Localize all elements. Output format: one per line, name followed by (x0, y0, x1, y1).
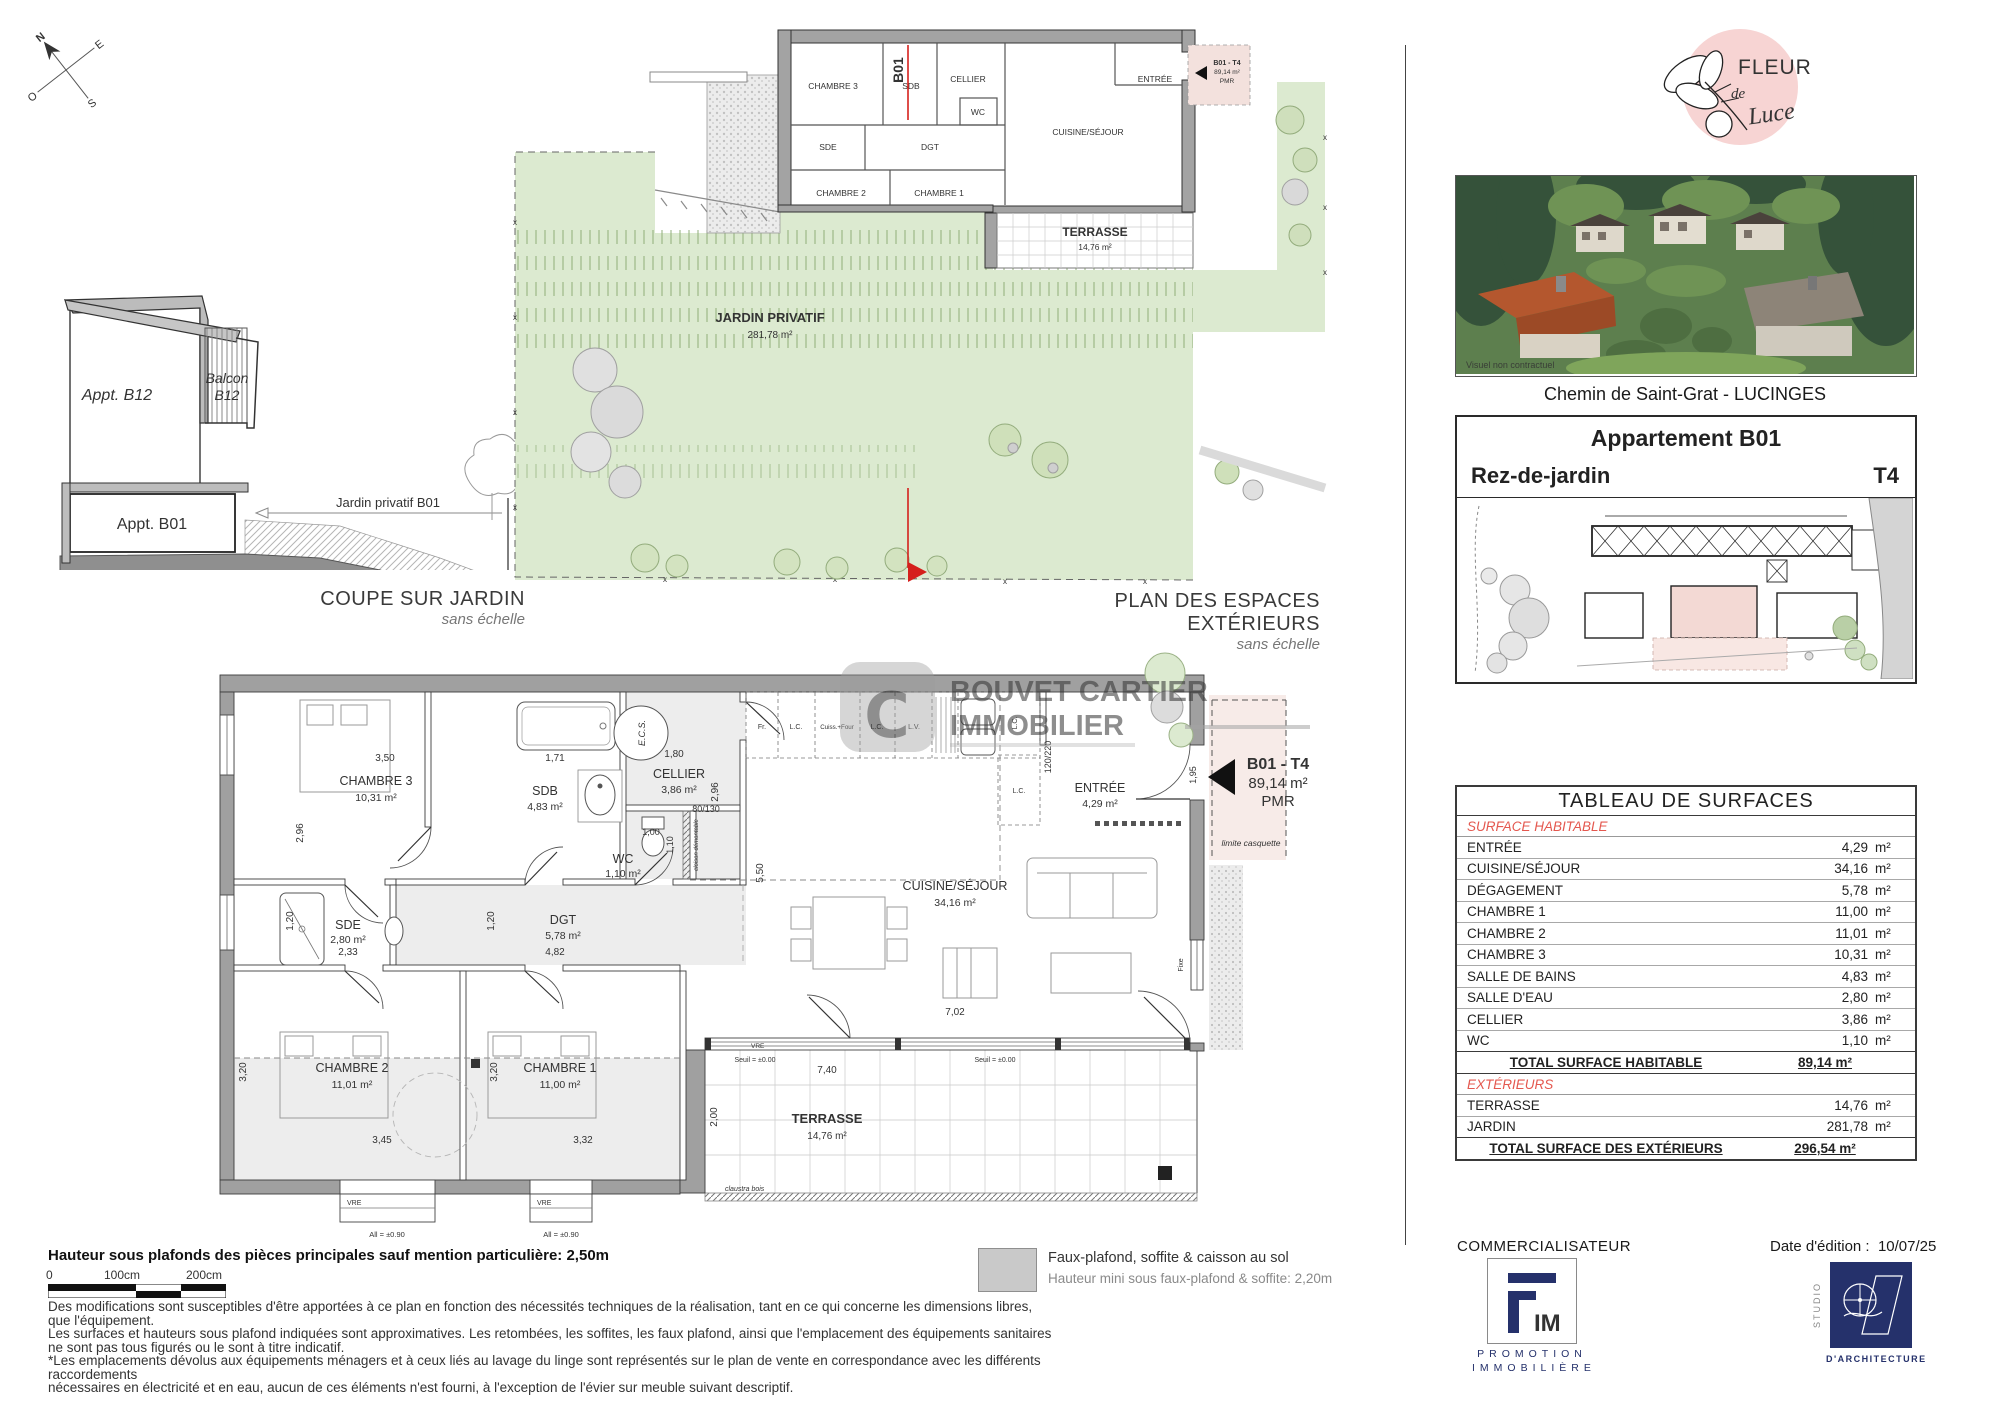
svg-text:B01: B01 (890, 57, 906, 83)
svg-text:Visuel non contractuel: Visuel non contractuel (1466, 360, 1554, 370)
svg-text:CUISINE/SÉJOUR: CUISINE/SÉJOUR (903, 878, 1008, 893)
table-row: CELLIER3,86m² (1457, 1009, 1915, 1031)
svg-text:VRE: VRE (537, 1200, 552, 1207)
svg-text:4,82: 4,82 (545, 947, 565, 958)
table-section-exterieurs: EXTÉRIEURS (1457, 1074, 1915, 1095)
svg-text:ENTRÉE: ENTRÉE (1138, 74, 1173, 84)
svg-text:L.C.: L.C. (790, 724, 803, 731)
table-row: CHAMBRE 310,31m² (1457, 945, 1915, 967)
svg-text:3,45: 3,45 (372, 1135, 392, 1146)
svg-text:34,16 m²: 34,16 m² (934, 897, 976, 909)
table-row: CUISINE/SÉJOUR34,16m² (1457, 859, 1915, 881)
svg-text:All = ±0.90: All = ±0.90 (369, 1230, 405, 1239)
table-row: CHAMBRE 211,01m² (1457, 923, 1915, 945)
svg-text:1,00: 1,00 (642, 827, 660, 837)
svg-text:3,86 m²: 3,86 m² (661, 784, 697, 796)
floor-plan-sheet: N E S O Appt. B12 Ba (0, 0, 2000, 1413)
svg-text:Balcon: Balcon (206, 370, 249, 386)
svg-text:CHAMBRE 2: CHAMBRE 2 (816, 188, 866, 198)
photo-caption: Chemin de Saint-Grat - LUCINGES (1455, 384, 1915, 405)
scale-bar (48, 1284, 226, 1298)
svg-text:VRE: VRE (751, 1043, 765, 1050)
svg-text:DGT: DGT (550, 913, 577, 927)
svg-text:PMR: PMR (1220, 78, 1235, 85)
exterior-plan-title: PLAN DES ESPACES EXTÉRIEURS (1080, 590, 1320, 636)
svg-text:3,50: 3,50 (375, 753, 395, 764)
svg-text:2,00: 2,00 (709, 1107, 720, 1127)
svg-text:Fr.: Fr. (758, 724, 766, 731)
svg-text:x: x (663, 575, 667, 584)
surface-table: TABLEAU DE SURFACES SURFACE HABITABLE EN… (1455, 785, 1917, 1161)
scale-100: 100cm (104, 1268, 140, 1282)
table-row: DÉGAGEMENT5,78m² (1457, 880, 1915, 902)
svg-text:7,40: 7,40 (817, 1065, 837, 1076)
studio-caption-label: D'ARCHITECTURE (1826, 1354, 1926, 1364)
unit-box: Appartement B01 Rez-de-jardin T4 (1455, 415, 1917, 684)
svg-text:SDE: SDE (335, 918, 361, 932)
unit-title: Appartement B01 (1457, 417, 1915, 452)
svg-text:Seuil = ±0.00: Seuil = ±0.00 (974, 1057, 1015, 1064)
table-total-habitable: TOTAL SURFACE HABITABLE89,14 m² (1457, 1051, 1915, 1074)
svg-text:CUISINE/SÉJOUR: CUISINE/SÉJOUR (1052, 127, 1123, 137)
svg-text:PMR: PMR (1261, 793, 1295, 810)
surface-table-title: TABLEAU DE SURFACES (1457, 787, 1915, 816)
coupe-title: COUPE SUR JARDIN (285, 588, 525, 611)
scale-200: 200cm (186, 1268, 222, 1282)
table-row: JARDIN281,78m² (1457, 1117, 1915, 1139)
svg-text:x: x (1323, 203, 1327, 212)
svg-text:B01 - T4: B01 - T4 (1213, 60, 1240, 67)
svg-text:CHAMBRE 2: CHAMBRE 2 (316, 1061, 389, 1075)
svg-text:x: x (1323, 133, 1327, 142)
svg-text:VRE: VRE (347, 1200, 362, 1207)
svg-text:IM: IM (1534, 1310, 1561, 1337)
site-plan (1457, 498, 1913, 679)
svg-text:2,33: 2,33 (338, 947, 358, 958)
svg-text:x: x (1323, 268, 1327, 277)
legend-line1: Faux-plafond, soffite & caisson au sol (1048, 1250, 1289, 1266)
svg-text:TERRASSE: TERRASSE (1062, 225, 1127, 239)
ceiling-height-note: Hauteur sous plafonds des pièces princip… (48, 1247, 609, 1264)
table-total-exterieurs: TOTAL SURFACE DES EXTÉRIEURS296,54 m² (1457, 1137, 1915, 1159)
svg-text:1,20: 1,20 (486, 911, 497, 931)
studio-vertical-label: STUDIO (1812, 1262, 1822, 1348)
svg-text:SDB: SDB (532, 784, 558, 798)
svg-text:89,14 m²: 89,14 m² (1248, 775, 1307, 792)
disclaimer: Des modifications sont susceptibles d'êt… (48, 1300, 1058, 1395)
svg-text:Appt. B01: Appt. B01 (117, 516, 187, 533)
table-row: SALLE DE BAINS4,83m² (1457, 966, 1915, 988)
svg-text:89,14 m²: 89,14 m² (1214, 69, 1240, 76)
svg-text:2,96: 2,96 (710, 782, 721, 802)
svg-text:4,29 m²: 4,29 m² (1082, 798, 1118, 810)
coupe-drawing: Appt. B12 Balcon B12 Appt. B01 Jardin pr… (40, 258, 532, 570)
project-photo: Visuel non contractuel (1455, 175, 1917, 377)
unit-type: T4 (1873, 463, 1899, 489)
table-section-habitable: SURFACE HABITABLE (1457, 816, 1915, 837)
fim-immobiliere-label: IMMOBILIÈRE (1472, 1362, 1592, 1374)
svg-text:x: x (513, 218, 517, 227)
svg-text:Fixe: Fixe (1178, 958, 1185, 971)
panel-divider (1405, 45, 1406, 1245)
svg-text:1,20: 1,20 (285, 911, 296, 931)
svg-text:JARDIN PRIVATIF: JARDIN PRIVATIF (715, 310, 824, 325)
svg-text:2,80 m²: 2,80 m² (330, 934, 366, 946)
exterior-plan-caption: PLAN DES ESPACES EXTÉRIEURS sans échelle (1080, 590, 1320, 653)
svg-text:x: x (513, 408, 517, 417)
table-row: ENTRÉE4,29m² (1457, 837, 1915, 859)
scale-0: 0 (46, 1268, 53, 1282)
svg-text:2,96: 2,96 (295, 823, 306, 843)
svg-text:limite casquette: limite casquette (1221, 838, 1280, 848)
unit-floor: Rez-de-jardin (1471, 463, 1610, 489)
svg-text:1,80: 1,80 (664, 749, 684, 760)
svg-text:3,20: 3,20 (238, 1062, 249, 1082)
exterior-plan: xxxx xxxx xxx TERRASSE 14,76 m² (505, 20, 1335, 640)
svg-text:1,71: 1,71 (545, 753, 565, 764)
svg-text:L.C.: L.C. (1013, 788, 1026, 795)
fim-logo-icon: IM (1487, 1258, 1577, 1344)
table-row: CHAMBRE 111,00m² (1457, 902, 1915, 924)
svg-text:B12: B12 (215, 387, 240, 403)
svg-text:11,01 m²: 11,01 m² (332, 1079, 373, 1091)
svg-text:x: x (1143, 577, 1147, 586)
faux-plafond-swatch (978, 1248, 1037, 1292)
svg-text:281,78 m²: 281,78 m² (747, 330, 793, 341)
svg-text:1,10 m²: 1,10 m² (605, 868, 641, 880)
svg-text:14,76 m²: 14,76 m² (1078, 242, 1112, 252)
svg-text:CHAMBRE 1: CHAMBRE 1 (914, 188, 964, 198)
svg-text:CHAMBRE 3: CHAMBRE 3 (808, 81, 858, 91)
svg-text:80/130: 80/130 (692, 804, 720, 814)
svg-text:Appt. B12: Appt. B12 (81, 387, 152, 404)
coupe-subtitle: sans échelle (285, 611, 525, 628)
svg-text:All = ±0.90: All = ±0.90 (543, 1230, 579, 1239)
compass-icon: N E S O (18, 22, 114, 118)
svg-text:C: C (864, 679, 910, 752)
coupe-caption: COUPE SUR JARDIN sans échelle (285, 588, 525, 628)
svg-text:Luce: Luce (1746, 98, 1797, 130)
svg-text:IMMOBILIER: IMMOBILIER (950, 710, 1124, 742)
svg-text:E.C.S.: E.C.S. (637, 720, 647, 746)
svg-text:x: x (513, 313, 517, 322)
svg-text:3,32: 3,32 (573, 1135, 593, 1146)
svg-text:FLEUR: FLEUR (1738, 56, 1812, 79)
svg-text:1,95: 1,95 (1188, 766, 1198, 784)
fim-promotion-label: PROMOTION (1472, 1348, 1592, 1360)
svg-text:S: S (86, 97, 99, 111)
svg-text:WC: WC (971, 107, 985, 117)
legend-line2: Hauteur mini sous faux-plafond & soffite… (1048, 1271, 1332, 1286)
edition-date: Date d'édition : 10/07/25 (1770, 1238, 1936, 1255)
svg-text:CHAMBRE 1: CHAMBRE 1 (524, 1061, 597, 1075)
svg-text:Seuil = ±0.00: Seuil = ±0.00 (734, 1057, 775, 1064)
svg-text:1,10: 1,10 (665, 836, 675, 854)
svg-text:B01 - T4: B01 - T4 (1247, 756, 1309, 773)
fleur-de-luce-logo-icon: FLEUR de Luce (1635, 12, 1835, 162)
table-row: SALLE D'EAU2,80m² (1457, 988, 1915, 1010)
svg-text:CELLIER: CELLIER (653, 767, 705, 781)
svg-text:de: de (1731, 86, 1746, 102)
svg-text:TERRASSE: TERRASSE (792, 1111, 863, 1126)
svg-text:x: x (1003, 577, 1007, 586)
main-floor-plan: TERRASSE 14,76 m² 7,40 Seuil = ±0.00 Seu… (195, 645, 1325, 1245)
svg-text:BOUVET CARTIER: BOUVET CARTIER (950, 676, 1208, 708)
svg-text:Jardin privatif B01: Jardin privatif B01 (336, 495, 440, 510)
svg-text:CELLIER: CELLIER (950, 74, 985, 84)
svg-text:7,02: 7,02 (945, 1007, 965, 1018)
svg-text:ENTRÉE: ENTRÉE (1075, 780, 1126, 795)
svg-text:11,00 m²: 11,00 m² (540, 1079, 581, 1091)
table-row: WC1,10m² (1457, 1031, 1915, 1053)
svg-text:5,50: 5,50 (755, 863, 766, 883)
svg-text:SDE: SDE (819, 142, 837, 152)
svg-text:claustra bois: claustra bois (725, 1186, 765, 1193)
svg-text:x: x (513, 503, 517, 512)
svg-text:4,83 m²: 4,83 m² (527, 801, 563, 813)
table-row: TERRASSE14,76m² (1457, 1095, 1915, 1117)
svg-text:14,76 m²: 14,76 m² (807, 1131, 847, 1142)
svg-text:cloison démontable: cloison démontable (694, 818, 700, 870)
studio-architecture-logo-icon (1830, 1262, 1912, 1348)
svg-text:E: E (93, 38, 106, 52)
svg-text:WC: WC (613, 852, 634, 866)
svg-text:DGT: DGT (921, 142, 939, 152)
svg-text:5,78 m²: 5,78 m² (545, 930, 581, 942)
commercialisateur-label: COMMERCIALISATEUR (1457, 1238, 1631, 1255)
svg-text:3,20: 3,20 (489, 1062, 500, 1082)
svg-text:10,31 m²: 10,31 m² (355, 792, 397, 804)
svg-text:CHAMBRE 3: CHAMBRE 3 (340, 774, 413, 788)
